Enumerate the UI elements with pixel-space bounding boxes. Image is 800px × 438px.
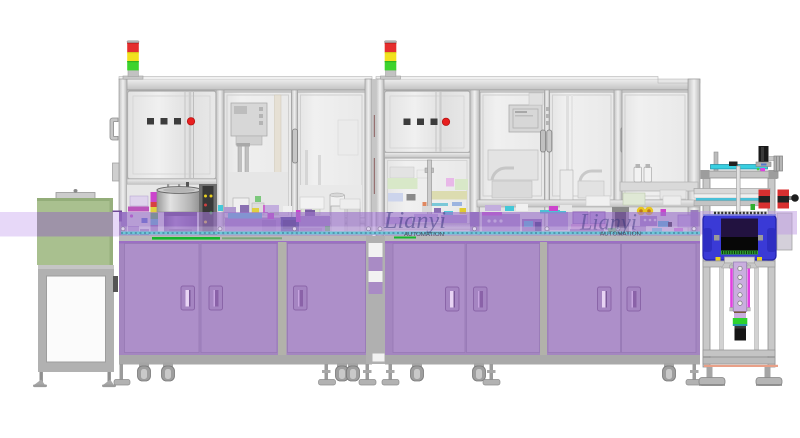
svg-text:AUTOMATION: AUTOMATION (600, 232, 641, 238)
svg-text:AUTOMATION: AUTOMATION (404, 232, 444, 238)
svg-text:Lianyi: Lianyi (383, 208, 446, 234)
